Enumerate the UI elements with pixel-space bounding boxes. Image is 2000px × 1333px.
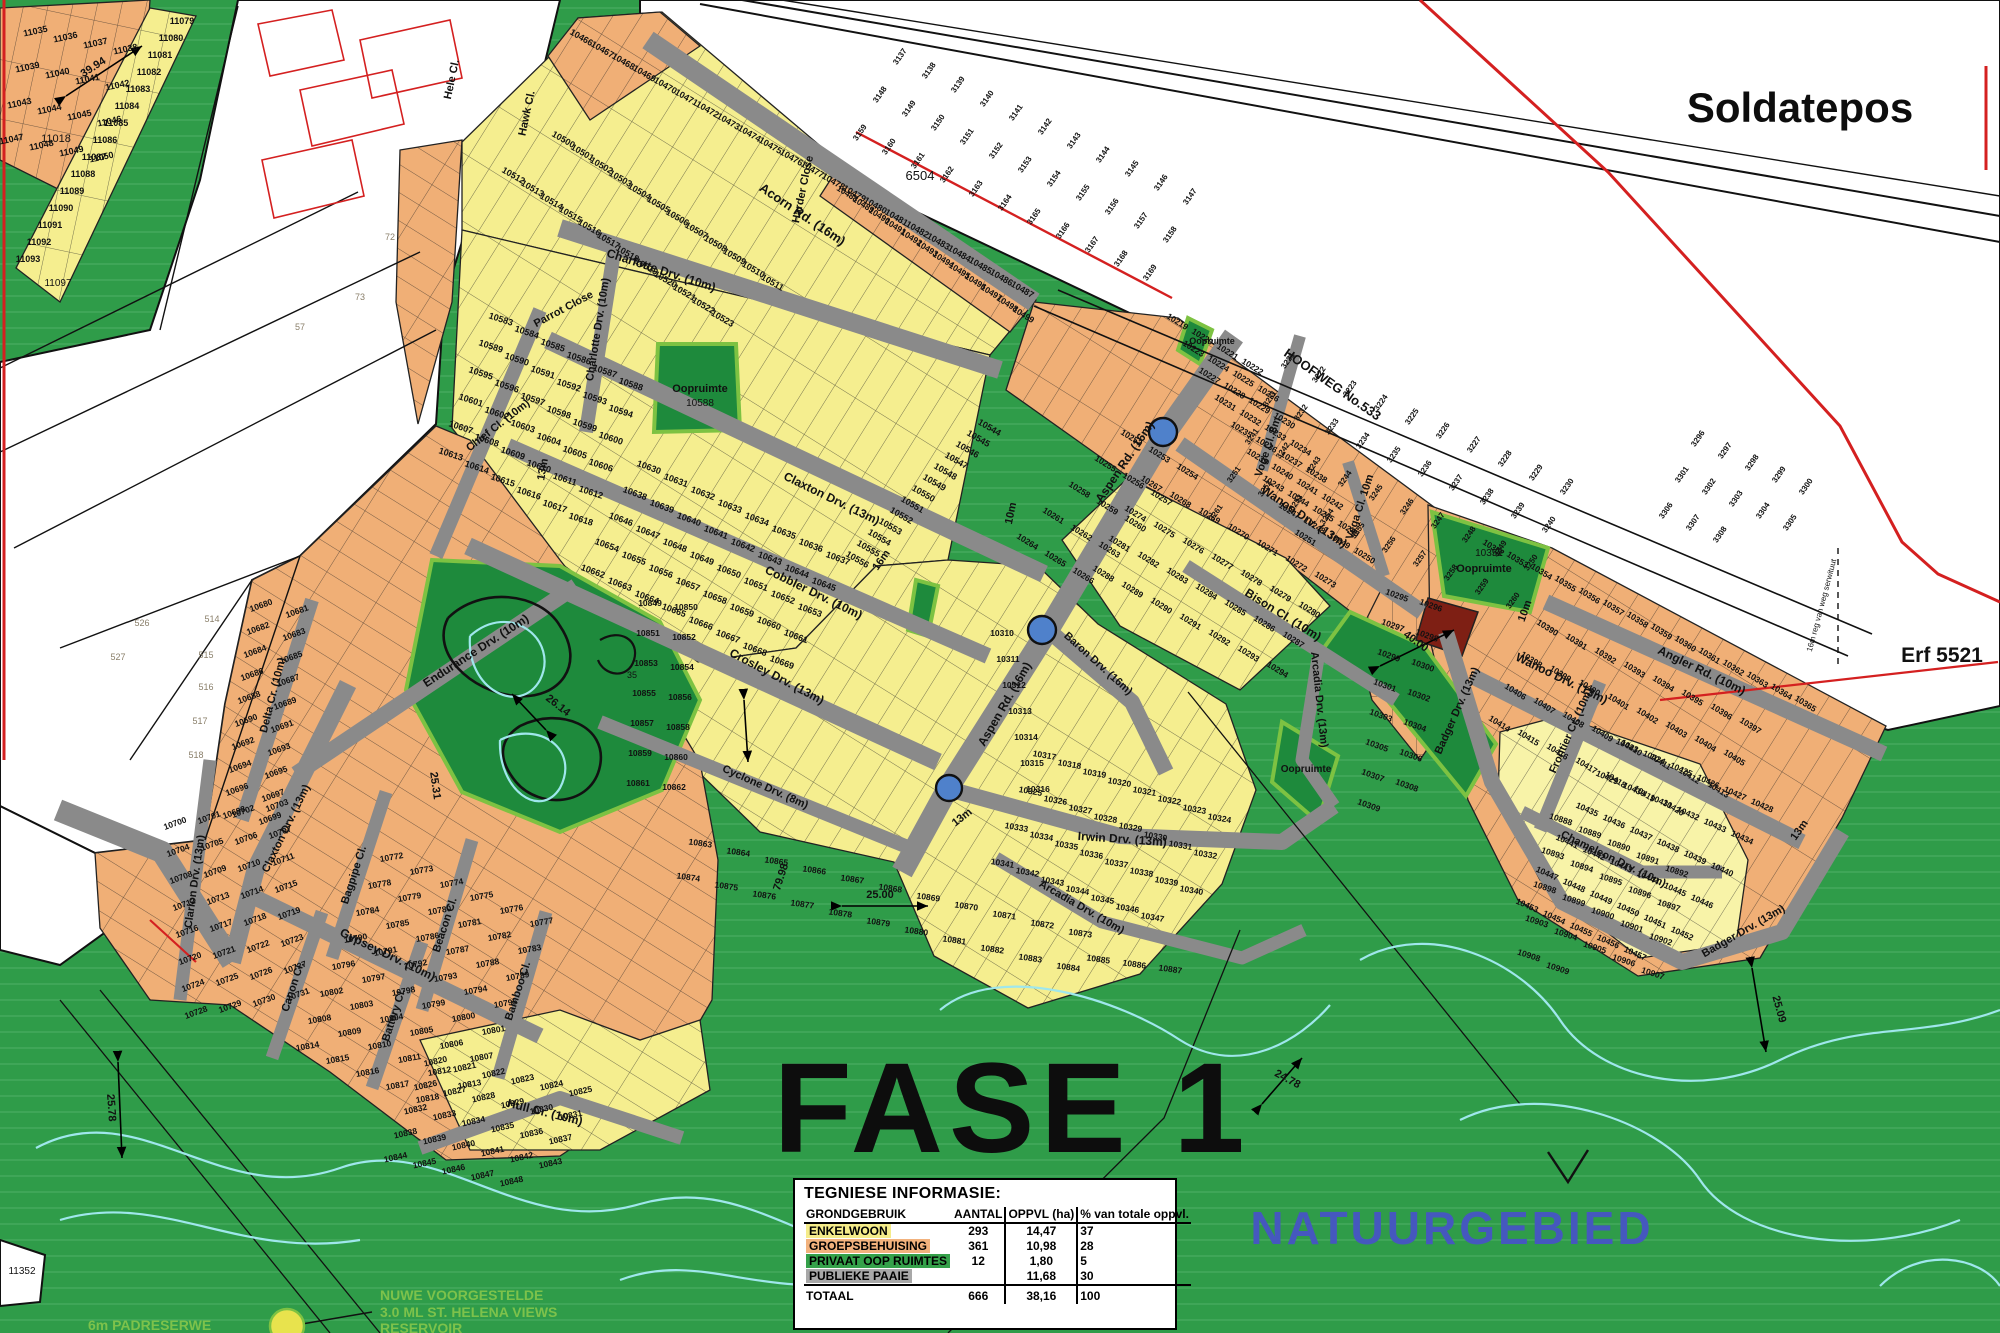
plot-number: 11084	[115, 101, 140, 111]
plot-number: 10853	[634, 658, 658, 668]
plot-number-faint: 514	[204, 614, 219, 624]
landuse-count: 361	[952, 1239, 1005, 1254]
plot-number-faint: 518	[188, 750, 203, 760]
plot-number-faint: 516	[198, 682, 213, 692]
area-label: Erf 5521	[1901, 644, 1983, 667]
plot-number: 10861	[626, 778, 650, 788]
area-label: Oopruimte	[1281, 764, 1332, 775]
plot-number: 11088	[71, 169, 96, 179]
plot-number: 11082	[137, 67, 162, 77]
plot-number: 10854	[670, 662, 694, 672]
table-header-3: % van totale oppvl.	[1077, 1207, 1191, 1223]
landuse-area: 14,47	[1005, 1223, 1077, 1239]
table-header-0: GRONDGEBRUIK	[804, 1207, 952, 1223]
area-label: Oopruimte	[672, 383, 728, 395]
table-header-1: AANTAL	[952, 1207, 1005, 1223]
area-label: 11097	[44, 278, 72, 289]
landuse-area: 11,68	[1005, 1269, 1077, 1285]
roundabout	[936, 775, 962, 801]
title-nature: NATUURGEBIED	[1250, 1202, 1653, 1254]
landuse-label: PUBLIEKE PAAIE	[804, 1269, 952, 1285]
landuse-count: 12	[952, 1254, 1005, 1269]
table-header-2: OPPVL (ha)	[1005, 1207, 1077, 1223]
plot-number: 10862	[662, 782, 686, 792]
plot-number: 11089	[60, 186, 85, 196]
plot-number-faint: 517	[192, 716, 207, 726]
landuse-percent: 28	[1077, 1239, 1191, 1254]
plot-number: 11079	[170, 16, 195, 26]
title-township: Soldatepos	[1687, 84, 1913, 131]
roundabout	[1028, 616, 1056, 644]
land-use-table: GRONDGEBRUIKAANTALOPPVL (ha)% van totale…	[804, 1207, 1191, 1304]
plot-number: 11081	[148, 50, 173, 60]
total-area: 38,16	[1005, 1285, 1077, 1304]
plot-number-faint: 527	[110, 652, 125, 662]
landuse-percent: 37	[1077, 1223, 1191, 1239]
technical-info-table: TEGNIESE INFORMASIE: GRONDGEBRUIKAANTALO…	[793, 1178, 1177, 1330]
total-percent: 100	[1077, 1285, 1191, 1304]
landuse-label: ENKELWOON	[804, 1223, 952, 1239]
plot-number: 11092	[27, 237, 52, 247]
landuse-count	[952, 1269, 1005, 1285]
plot-number: 10315	[1020, 758, 1044, 768]
plot-number-faint: 526	[134, 618, 149, 628]
plot-number: 10313	[1008, 706, 1032, 716]
plot-number: 11086	[93, 135, 118, 145]
landuse-percent: 5	[1077, 1254, 1191, 1269]
dimension-label: 25.00	[866, 889, 894, 901]
area-label: 11352	[8, 1266, 36, 1277]
landuse-area: 10,98	[1005, 1239, 1077, 1254]
annotation-reservoir_line1: NUWE VOORGESTELDE	[380, 1287, 543, 1303]
township-plan: 1046610467104681046910470104711047210473…	[0, 0, 2000, 1333]
annotation-road_reserve: 6m PADRESERWE	[88, 1317, 211, 1333]
plot-number: 10858	[666, 722, 690, 732]
plot-number-faint: 57	[295, 322, 305, 332]
area-label: 11018	[41, 133, 71, 145]
area-label: 35	[627, 670, 637, 680]
plot-number: 10311	[996, 654, 1019, 664]
plot-number: 10856	[668, 692, 692, 702]
plot-number-faint: 72	[385, 232, 395, 242]
reservoir-symbol	[270, 1309, 304, 1333]
plot-number-faint: 73	[355, 292, 365, 302]
plan-map: 1046610467104681046910470104711047210473…	[0, 0, 2000, 1333]
plot-number: 11090	[49, 203, 74, 213]
plot-number: 10849	[638, 598, 662, 608]
total-count: 666	[952, 1285, 1005, 1304]
plot-number: 11093	[16, 254, 41, 264]
plot-number: 10314	[1014, 732, 1038, 742]
landuse-percent: 30	[1077, 1269, 1191, 1285]
total-label: TOTAAL	[804, 1285, 952, 1304]
annotation-reservoir_line2: 3.0 ML ST. HELENA VIEWS	[380, 1304, 557, 1320]
plot-number: 10852	[672, 632, 696, 642]
plot-number: 10850	[674, 602, 698, 612]
plot-number: 11080	[159, 33, 184, 43]
landuse-count: 293	[952, 1223, 1005, 1239]
plot-number: 10859	[628, 748, 652, 758]
area-label: Oopruimte	[1189, 336, 1235, 346]
title-phase: FASE 1	[773, 1037, 1250, 1180]
plot-number: 10860	[664, 752, 688, 762]
plot-number: 10857	[630, 718, 654, 728]
plot-number-faint: 515	[198, 650, 213, 660]
area-label: 10588	[686, 398, 714, 409]
area-label: 6504	[906, 168, 935, 183]
area-label: 10352	[1475, 548, 1503, 559]
landuse-area: 1,80	[1005, 1254, 1077, 1269]
dimension-label: 25.78	[104, 1094, 118, 1122]
plot-number: 11091	[38, 220, 63, 230]
table-title: TEGNIESE INFORMASIE:	[804, 1185, 1166, 1203]
plot-number: 10851	[636, 628, 660, 638]
landuse-label: GROEPSBEHUISING	[804, 1239, 952, 1254]
area-label: Oopruimte	[1456, 563, 1512, 575]
plot-number: 10855	[632, 688, 656, 698]
landuse-label: PRIVAAT OOP RUIMTES	[804, 1254, 952, 1269]
annotation-reservoir_line3: RESERVOIR	[380, 1320, 462, 1333]
plot-number: 10310	[990, 628, 1014, 638]
